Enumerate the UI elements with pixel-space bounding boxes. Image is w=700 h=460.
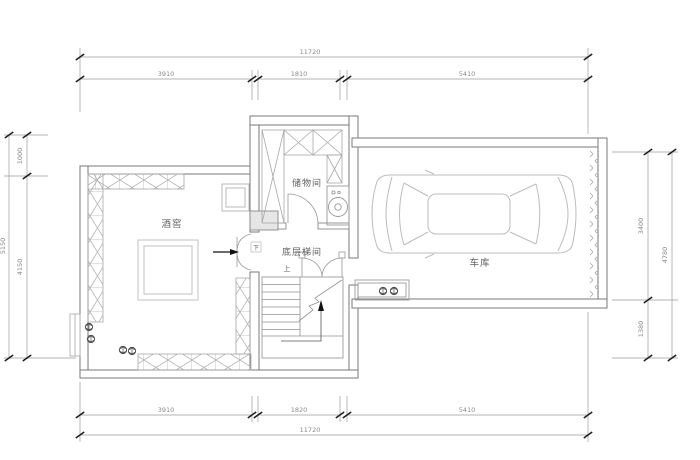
stair-treads xyxy=(262,285,300,330)
storage-room xyxy=(288,186,349,225)
floor-drain-symbol xyxy=(119,346,126,353)
label-up: 上 xyxy=(284,264,291,273)
dim-right-total-label: 4780 xyxy=(661,247,669,264)
room-label-wine-cellar: 酒窖 xyxy=(161,218,182,230)
stair-walk-line xyxy=(281,300,324,341)
corner-cabinet xyxy=(222,184,249,211)
floor-drain-symbol xyxy=(379,287,386,294)
wine-entry-door xyxy=(237,234,251,270)
hatch-wine-right xyxy=(236,278,250,354)
wall-garage-top xyxy=(352,138,607,147)
dim-top-seg2-label: 1810 xyxy=(291,70,308,78)
stairs xyxy=(262,252,345,358)
wine-table xyxy=(138,240,198,300)
storage-door xyxy=(288,194,318,223)
dim-left-seg2-label: 4150 xyxy=(16,259,24,276)
stair-boundary xyxy=(262,277,343,358)
car-mirrors xyxy=(425,170,434,258)
garage-room xyxy=(355,150,599,300)
car-front-line xyxy=(386,177,392,251)
hatch-storage-top xyxy=(284,130,342,155)
dim-bottom-seg3-label: 5410 xyxy=(459,406,476,414)
garage-cabinet xyxy=(355,280,409,300)
car-rear-window xyxy=(536,184,540,244)
wall-garage-right xyxy=(598,138,607,308)
dim-right-seg1-label: 3400 xyxy=(637,218,645,235)
walls xyxy=(80,116,607,378)
car-pillars xyxy=(404,183,536,245)
dimensions-left: 1000 4150 5150 xyxy=(0,132,76,361)
wall-bottom xyxy=(80,370,358,378)
dim-bottom-total-label: 11720 xyxy=(300,426,321,434)
dim-bottom-seg1-label: 3910 xyxy=(158,406,175,414)
car xyxy=(372,170,576,258)
room-label-stairwell: 底层梯间 xyxy=(282,246,322,258)
dim-top-total-label: 11720 xyxy=(300,48,321,56)
dim-top-seg1-label: 3910 xyxy=(158,70,175,78)
wall-partition-right xyxy=(318,223,349,229)
wall-central-right-lower xyxy=(349,285,358,370)
dim-top-seg3-label: 5410 xyxy=(459,70,476,78)
hatch-wine-left xyxy=(88,174,103,322)
wall-wine-top xyxy=(80,166,258,174)
car-windshield xyxy=(400,183,405,245)
dim-bottom-seg2-label: 1820 xyxy=(291,406,308,414)
dim-right-seg2-label: 1380 xyxy=(637,321,645,338)
room-label-garage: 车库 xyxy=(469,257,490,269)
dim-left-total-label: 5150 xyxy=(0,238,7,255)
garage-insulation-zigzag xyxy=(590,150,599,298)
floor-drain-symbol xyxy=(128,347,135,354)
wall-central-right-upper xyxy=(349,116,358,258)
hatch-storage-tall xyxy=(262,130,284,223)
floor-plan-page: 11720 3910 1810 5410 3910 1820 5410 1172… xyxy=(0,0,700,460)
hatch-wine-bottom xyxy=(138,354,251,370)
hatch-storage-right xyxy=(327,155,342,183)
washing-machine xyxy=(327,186,349,225)
floor-plan-canvas: 11720 3910 1810 5410 3910 1820 5410 1172… xyxy=(0,0,700,460)
wall-wine-left xyxy=(80,166,88,378)
dimensions-right: 3400 1380 4780 xyxy=(612,149,678,361)
car-roof xyxy=(428,194,510,234)
floor-drain-symbol xyxy=(390,287,397,294)
car-rear-line xyxy=(558,177,568,251)
label-down: 下 xyxy=(253,245,259,252)
window xyxy=(70,314,80,356)
dim-left-seg1-label: 1000 xyxy=(16,148,24,165)
wall-central-top xyxy=(250,116,358,125)
stair-break-line xyxy=(299,280,342,321)
entry-arrow xyxy=(213,249,239,255)
room-label-storage: 储物间 xyxy=(292,177,322,189)
